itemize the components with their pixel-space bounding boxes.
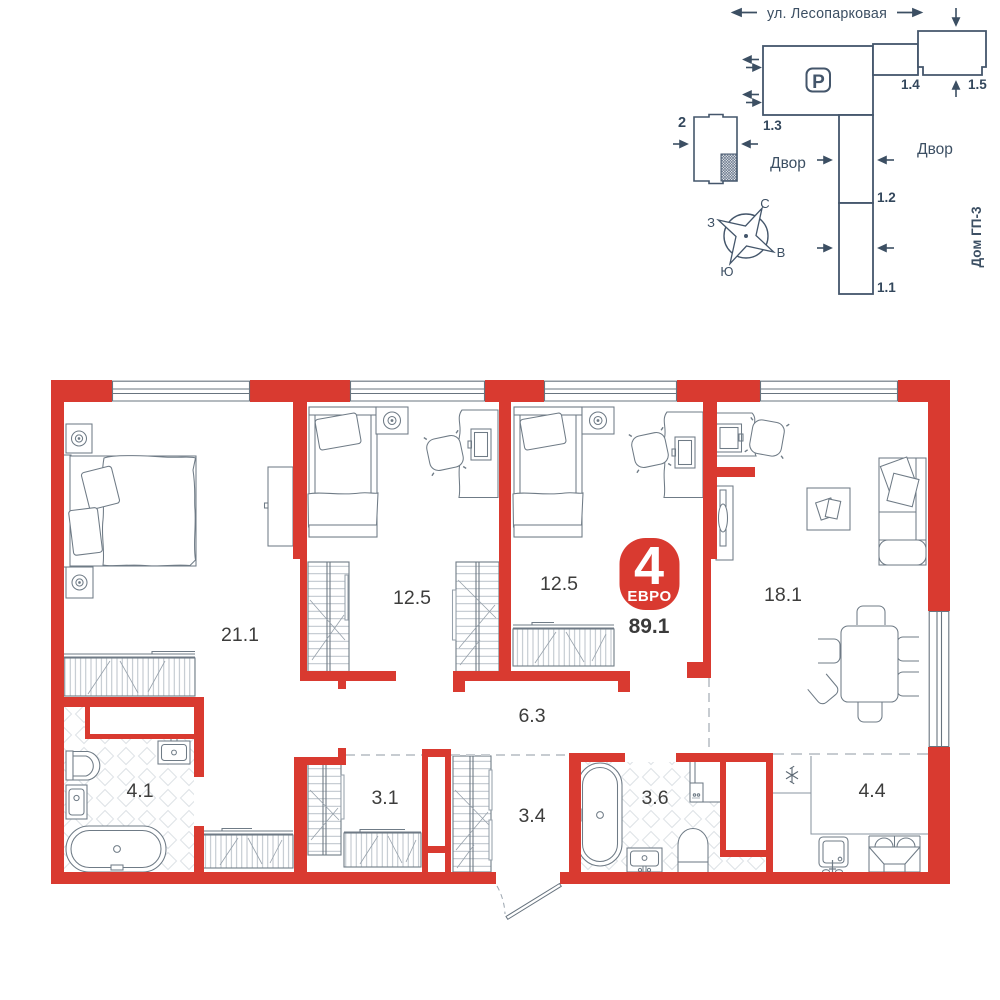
svg-text:1.1: 1.1 bbox=[877, 280, 896, 295]
svg-text:1.4: 1.4 bbox=[901, 77, 920, 92]
svg-text:89.1: 89.1 bbox=[629, 615, 670, 638]
svg-text:3.1: 3.1 bbox=[371, 787, 398, 809]
svg-text:В: В bbox=[777, 245, 786, 260]
svg-text:1.3: 1.3 bbox=[763, 118, 782, 133]
svg-text:12.5: 12.5 bbox=[393, 587, 431, 609]
svg-text:Двор: Двор bbox=[917, 141, 953, 158]
svg-text:21.1: 21.1 bbox=[221, 624, 259, 646]
svg-text:3.6: 3.6 bbox=[641, 787, 668, 809]
svg-text:3.4: 3.4 bbox=[518, 805, 545, 827]
svg-text:4.1: 4.1 bbox=[126, 780, 153, 802]
svg-text:1.5: 1.5 bbox=[968, 77, 987, 92]
svg-text:Ю: Ю bbox=[720, 264, 733, 279]
svg-text:2: 2 bbox=[678, 115, 686, 131]
svg-text:Двор: Двор bbox=[770, 155, 806, 172]
svg-text:P: P bbox=[812, 72, 825, 93]
svg-text:4: 4 bbox=[634, 536, 664, 596]
svg-text:ул. Лесопарковая: ул. Лесопарковая bbox=[767, 6, 887, 22]
svg-text:6.3: 6.3 bbox=[518, 705, 545, 727]
svg-text:1.2: 1.2 bbox=[877, 190, 896, 205]
svg-text:Дом ГП-3: Дом ГП-3 bbox=[969, 206, 984, 267]
svg-text:С: С bbox=[760, 196, 769, 211]
svg-text:18.1: 18.1 bbox=[764, 584, 802, 606]
svg-text:12.5: 12.5 bbox=[540, 573, 578, 595]
svg-text:ЕВРО: ЕВРО bbox=[627, 588, 671, 605]
svg-text:4.4: 4.4 bbox=[858, 780, 885, 802]
svg-text:З: З bbox=[707, 215, 715, 230]
